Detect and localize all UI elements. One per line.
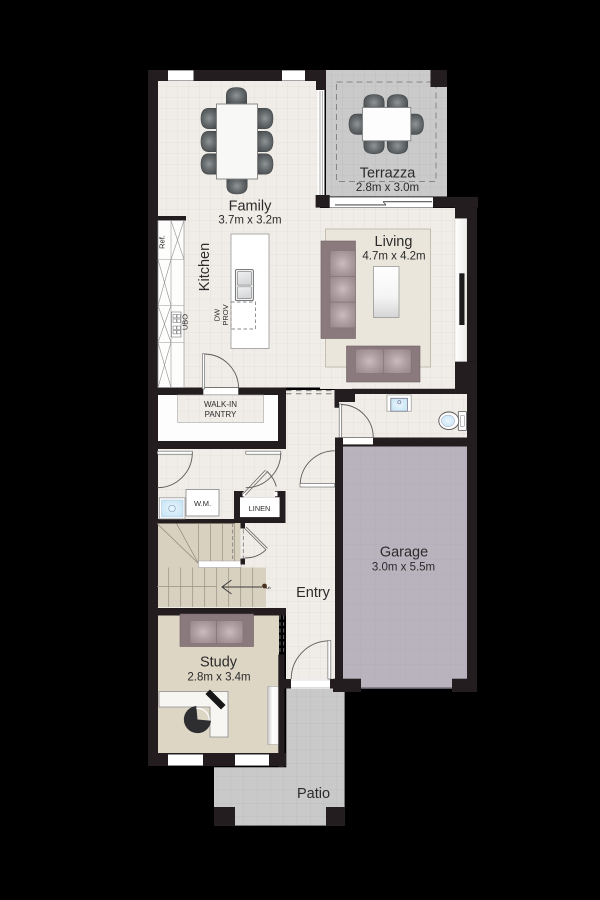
svg-text:UBO: UBO xyxy=(181,314,190,330)
svg-text:W.M.: W.M. xyxy=(194,499,211,508)
svg-text:Garage: Garage xyxy=(380,545,428,561)
svg-text:3.7m x 3.2m: 3.7m x 3.2m xyxy=(218,215,281,227)
svg-text:2.8m x 3.0m: 2.8m x 3.0m xyxy=(356,182,419,194)
svg-text:Terrazza: Terrazza xyxy=(360,166,417,182)
svg-text:PROV: PROV xyxy=(221,304,230,325)
svg-text:LINEN: LINEN xyxy=(249,504,271,513)
svg-text:4.7m x 4.2m: 4.7m x 4.2m xyxy=(362,251,425,263)
svg-text:Family: Family xyxy=(229,199,272,215)
svg-text:3.0m x 5.5m: 3.0m x 5.5m xyxy=(372,562,435,574)
svg-text:Kitchen: Kitchen xyxy=(197,243,213,291)
svg-text:5: 5 xyxy=(267,586,273,589)
svg-text:Study: Study xyxy=(200,655,238,671)
svg-text:Ref.: Ref. xyxy=(158,235,167,249)
svg-text:PANTRY: PANTRY xyxy=(205,410,237,419)
svg-text:Patio: Patio xyxy=(297,786,330,802)
svg-text:Living: Living xyxy=(375,234,413,250)
svg-text:WALK-IN: WALK-IN xyxy=(204,400,237,409)
svg-text:2.8m x 3.4m: 2.8m x 3.4m xyxy=(187,672,250,684)
svg-text:Entry: Entry xyxy=(296,585,331,601)
